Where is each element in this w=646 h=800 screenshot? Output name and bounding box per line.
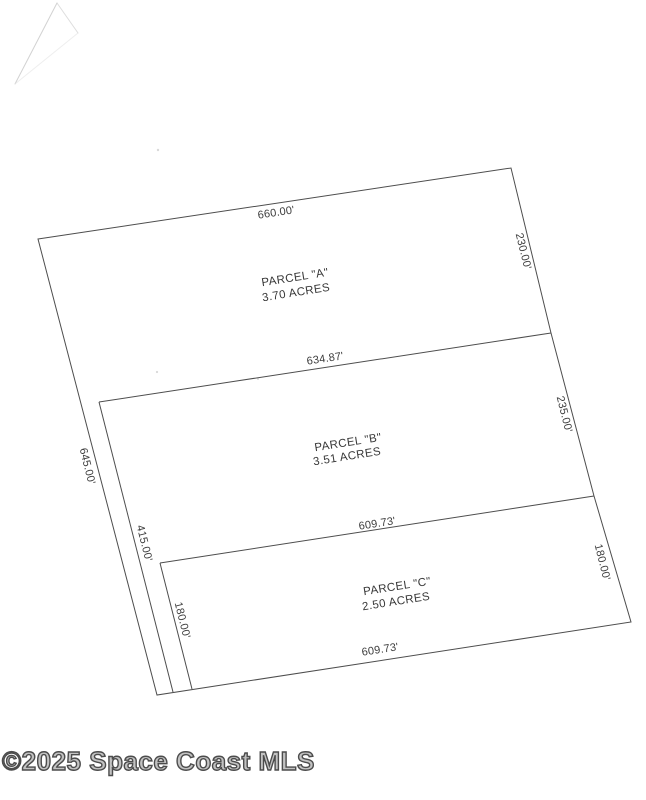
scan-speckles [156,149,259,380]
dimension-labels: 660.00' 230.00' 634.87' 235.00' 609.73' … [77,204,613,658]
dimension-label-b-c: 609.73' [358,515,397,533]
dimension-label-east-b: 235.00' [554,395,575,434]
plat-survey-page: 660.00' 230.00' 634.87' 235.00' 609.73' … [0,0,646,800]
flag-strip-east-line [99,402,173,692]
scan-speckle [157,149,159,151]
scan-artifact-line [57,3,78,33]
outer-boundary-line [38,168,631,695]
mls-watermark: ©2025 Space Coast MLS [2,746,315,777]
scan-speckle [156,371,158,373]
dimension-label-east-a: 230.00' [513,232,534,271]
parcel-a-b-boundary-line [99,333,551,402]
scan-artifact-line [15,3,57,84]
scan-artifact-marks [15,3,78,84]
dimension-label-flag-strip: 415.00' [134,524,155,563]
dimension-label-north: 660.00' [257,204,296,221]
dimension-label-south: 609.73' [361,641,400,659]
survey-plat-drawing: 660.00' 230.00' 634.87' 235.00' 609.73' … [0,0,646,800]
scan-artifact-line [15,33,78,84]
parcel-labels: PARCEL "A" 3.70 ACRES PARCEL "B" 3.51 AC… [261,267,432,614]
boundary-lines [38,168,631,695]
